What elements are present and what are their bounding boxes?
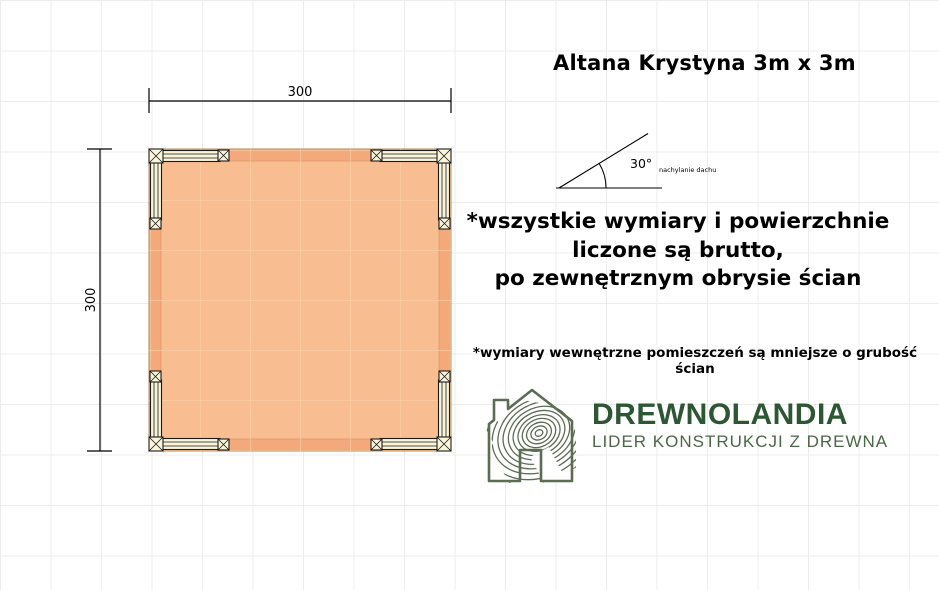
wall-beam-top (162, 151, 220, 162)
sheet-title: Altana Krystyna 3m x 3m (553, 51, 856, 75)
wood-grain-house-icon (484, 387, 576, 483)
roof-pitch-caption: nachylanie dachu (659, 166, 716, 174)
roof-angle-label: 30° (630, 156, 652, 171)
logo-text-block: DREWNOLANDIA LIDER KONSTRUKCJI Z DREWNA (592, 400, 888, 451)
logo-brand-name: DREWNOLANDIA (592, 400, 888, 430)
main-note-line-2: liczone są brutto, (437, 237, 919, 266)
drawing-sheet: 300 300 30° nachylanie dachu Altana Krys… (0, 0, 939, 590)
main-note-line-3: po zewnętrznym obrysie ścian (437, 265, 919, 294)
dimension-top: 300 (149, 85, 451, 113)
dimension-top-label: 300 (288, 85, 313, 100)
roof-angle-arc (599, 163, 606, 188)
wall-beam-left (151, 162, 162, 220)
logo-tagline: LIDER KONSTRUKCJI Z DREWNA (592, 433, 888, 451)
main-note-line-1: *wszystkie wymiary i powierzchnie (437, 208, 919, 237)
dimension-left: 300 (84, 149, 112, 451)
floor-plan-drawing: 300 300 (80, 80, 470, 470)
dimension-left-label: 300 (84, 288, 99, 313)
floor-grid-overlay (149, 149, 451, 451)
roof-pitch-diagram: 30° nachylanie dachu (540, 118, 740, 198)
main-note: *wszystkie wymiary i powierzchnie liczon… (437, 208, 919, 294)
secondary-note: *wymiary wewnętrzne pomieszczeń są mniej… (452, 345, 938, 377)
company-logo: DREWNOLANDIA LIDER KONSTRUKCJI Z DREWNA (484, 387, 864, 487)
